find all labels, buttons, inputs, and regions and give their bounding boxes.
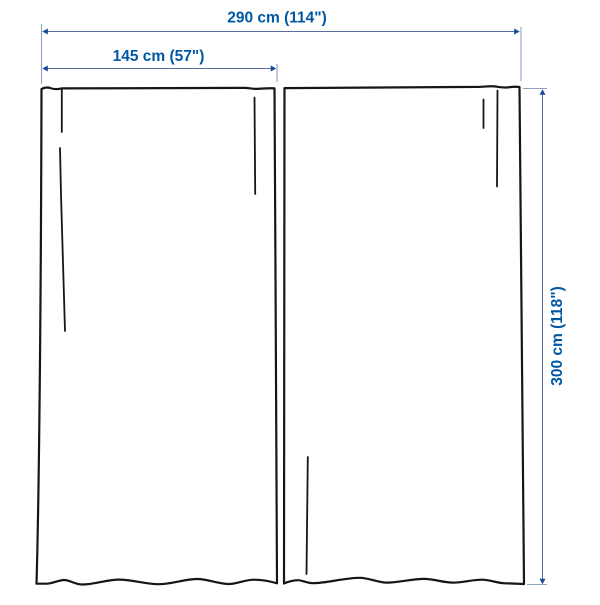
svg-text:290 cm (114"): 290 cm (114") [227, 10, 327, 27]
svg-text:300 cm (118"): 300 cm (118") [549, 286, 566, 386]
svg-text:145 cm (57"): 145 cm (57") [113, 48, 205, 65]
